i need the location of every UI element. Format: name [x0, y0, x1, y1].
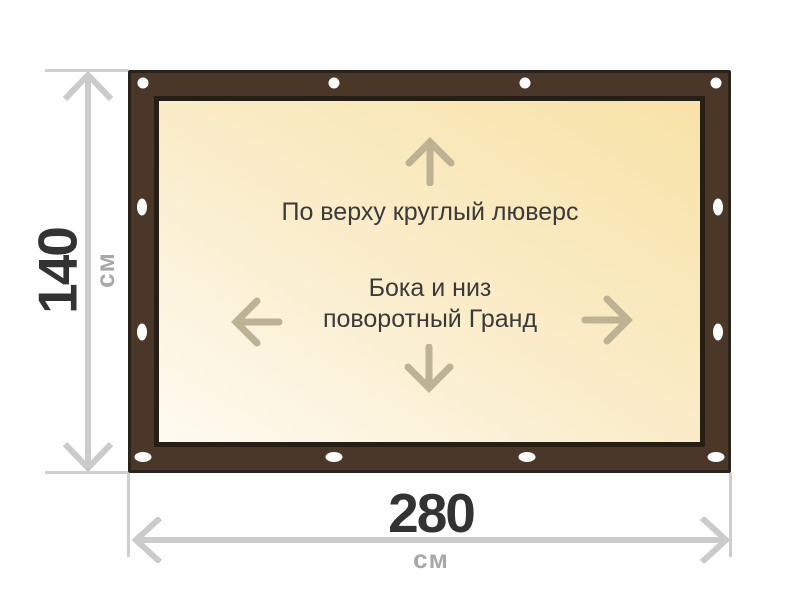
grand-fastener-icon: [708, 452, 725, 462]
grand-fastener-icon: [137, 324, 147, 341]
grand-fastener-icon: [326, 452, 343, 462]
down-arrow-icon: [403, 344, 455, 394]
grand-fastener-icon: [137, 199, 147, 216]
grand-fastener-icon: [135, 452, 152, 462]
width-unit: см: [131, 546, 731, 572]
sides-bottom-note-line1: Бока и низ: [156, 273, 704, 304]
sides-bottom-note-line2: поворотный Гранд: [156, 304, 704, 335]
product-dimension-diagram: 140 см: [0, 0, 800, 600]
grand-fastener-icon: [713, 324, 723, 341]
height-unit: см: [92, 252, 118, 288]
round-grommet-icon: [711, 78, 722, 89]
grand-fastener-icon: [519, 452, 536, 462]
top-grommet-note: По верху круглый люверс: [156, 197, 704, 228]
banner-frame: [128, 70, 731, 473]
round-grommet-icon: [329, 78, 340, 89]
round-grommet-icon: [138, 78, 149, 89]
round-grommet-icon: [520, 78, 531, 89]
width-left-tick: [127, 473, 130, 557]
up-arrow-icon: [404, 136, 456, 186]
height-value: 140: [31, 228, 86, 314]
width-value: 280: [131, 486, 731, 541]
grand-fastener-icon: [713, 199, 723, 216]
sides-bottom-note: Бока и низ поворотный Гранд: [156, 273, 704, 335]
